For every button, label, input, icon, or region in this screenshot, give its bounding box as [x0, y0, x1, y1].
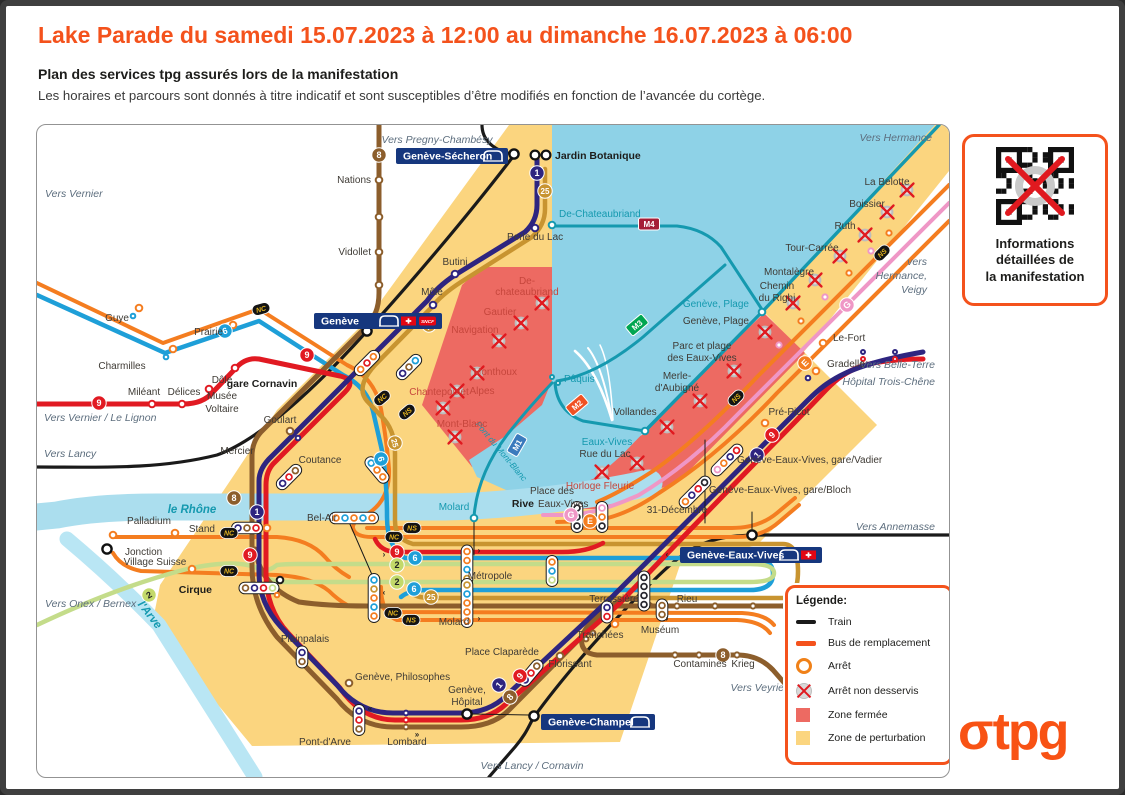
svg-text:›: ›: [666, 614, 669, 623]
svg-text:Vers Veyrier: Vers Veyrier: [731, 682, 788, 694]
svg-text:Nations: Nations: [337, 175, 371, 186]
svg-text:1: 1: [254, 507, 259, 517]
svg-text:9: 9: [247, 550, 252, 560]
svg-text:Genève, Philosophes: Genève, Philosophes: [355, 672, 450, 683]
svg-text:Navigation: Navigation: [451, 325, 498, 336]
svg-text:NC: NC: [224, 531, 235, 538]
svg-text:De-Chateaubriand: De-Chateaubriand: [559, 209, 641, 220]
svg-text:du Righi: du Righi: [759, 293, 796, 304]
svg-text:Terrassière: Terrassière: [589, 594, 639, 605]
tpg-sigma-icon: σ: [958, 703, 992, 761]
svg-text:Vers Hermance: Vers Hermance: [859, 132, 932, 144]
svg-text:d'Aubigné: d'Aubigné: [655, 383, 700, 394]
svg-text:chateaubriand: chateaubriand: [495, 287, 558, 298]
svg-text:Molard: Molard: [439, 617, 470, 628]
svg-text:Lombard: Lombard: [387, 737, 426, 748]
svg-text:Rive: Rive: [512, 498, 534, 510]
svg-text:›: ›: [478, 546, 481, 555]
svg-text:Genève-Eaux-Vives, gare/Vadier: Genève-Eaux-Vives, gare/Vadier: [737, 455, 883, 466]
page-frame: Lake Parade du samedi 15.07.2023 à 12:00…: [0, 0, 1125, 795]
svg-text:NC: NC: [388, 611, 399, 618]
svg-text:Musée: Musée: [207, 391, 237, 402]
svg-text:Chemin: Chemin: [760, 281, 794, 292]
svg-text:Vers Pregny-Chambésy: Vers Pregny-Chambésy: [381, 134, 493, 146]
legend-item-train: Train: [796, 616, 942, 628]
svg-text:1: 1: [534, 168, 539, 178]
svg-text:Eaux-Vives: Eaux-Vives: [538, 499, 588, 510]
svg-text:Voltaire: Voltaire: [205, 404, 239, 415]
svg-text:Charmilles: Charmilles: [98, 361, 145, 372]
svg-text:›: ›: [478, 614, 481, 623]
qr-info-box[interactable]: Informationsdétaillées dela manifestatio…: [962, 134, 1108, 306]
svg-text:Genève-Eaux-Vives, gare/Bloch: Genève-Eaux-Vives, gare/Bloch: [709, 485, 851, 496]
page-note: Les horaires et parcours sont donnés à t…: [38, 88, 765, 103]
svg-text:Vers Vernier / Le Lignon: Vers Vernier / Le Lignon: [44, 412, 157, 424]
svg-text:8: 8: [231, 493, 236, 503]
svg-text:De-: De-: [519, 276, 535, 287]
svg-text:Môle: Môle: [421, 287, 443, 298]
svg-text:Ruth: Ruth: [834, 221, 855, 232]
svg-text:Muséum: Muséum: [641, 625, 679, 636]
svg-text:Florissant: Florissant: [548, 659, 592, 670]
svg-text:Horloge Fleurie: Horloge Fleurie: [566, 481, 635, 492]
svg-text:‹: ‹: [666, 550, 669, 559]
page-title: Lake Parade du samedi 15.07.2023 à 12:00…: [38, 22, 852, 49]
cff-icon: [401, 317, 416, 326]
svg-text:Montalègre: Montalègre: [764, 267, 814, 278]
svg-text:2: 2: [394, 577, 399, 587]
svg-text:Guye: Guye: [105, 313, 129, 324]
svg-text:Genève-Sécheron: Genève-Sécheron: [403, 151, 492, 163]
svg-text:Vers Vernier: Vers Vernier: [45, 188, 103, 200]
svg-text:25: 25: [427, 593, 436, 602]
legend-item-bus: Bus de remplacement: [796, 637, 942, 649]
svg-text:Tour-Carrée: Tour-Carrée: [785, 243, 839, 254]
svg-text:Veigy: Veigy: [901, 284, 928, 296]
legend-item-x: Arrêt non desservis: [796, 683, 942, 699]
svg-text:Contamines: Contamines: [673, 659, 726, 670]
svg-text:Perle du Lac: Perle du Lac: [507, 232, 563, 243]
svg-text:Goulart: Goulart: [264, 415, 297, 426]
svg-text:Prairie: Prairie: [194, 327, 223, 338]
svg-text:Vollandes: Vollandes: [613, 407, 656, 418]
svg-text:NS: NS: [406, 618, 416, 625]
legend-item-zy: Zone de perturbation: [796, 731, 942, 745]
svg-text:Vers Belle-Terre: Vers Belle-Terre: [860, 359, 935, 371]
svg-text:‹: ‹: [383, 588, 386, 597]
svg-text:NS: NS: [407, 526, 417, 533]
svg-text:8: 8: [376, 150, 381, 160]
svg-text:Butini: Butini: [442, 257, 467, 268]
svg-text:Vers Lancy: Vers Lancy: [44, 448, 97, 460]
svg-text:Genève,: Genève,: [448, 685, 486, 696]
svg-text:Alpes: Alpes: [469, 386, 494, 397]
svg-text:Mont-Blanc: Mont-Blanc: [437, 419, 488, 430]
svg-text:Molard: Molard: [439, 502, 470, 513]
svg-text:Genève, Plage: Genève, Plage: [683, 316, 750, 327]
svg-text:Jardin Botanique: Jardin Botanique: [555, 150, 641, 162]
svg-text:Genève, Plage: Genève, Plage: [683, 299, 750, 310]
svg-text:Eaux-Vives: Eaux-Vives: [582, 437, 632, 448]
svg-text:Vers Annemasse: Vers Annemasse: [856, 521, 935, 533]
svg-text:Pré-Picot: Pré-Picot: [768, 407, 809, 418]
svg-text:«: «: [368, 704, 373, 713]
svg-text:G: G: [567, 510, 574, 520]
svg-text:gare Cornavin: gare Cornavin: [227, 378, 298, 390]
legend: Légende: TrainBus de remplacementArrêtAr…: [785, 585, 950, 765]
sncf-icon: SNCF: [419, 317, 436, 326]
svg-text:le Rhône: le Rhône: [168, 504, 217, 516]
legend-items: TrainBus de remplacementArrêtArrêt non d…: [796, 616, 942, 745]
svg-text:Gautier: Gautier: [484, 307, 517, 318]
svg-text:Stand: Stand: [189, 524, 215, 535]
svg-text:M4: M4: [643, 220, 655, 229]
legend-item-zr: Zone fermée: [796, 708, 942, 722]
svg-text:Genève-Champel: Genève-Champel: [548, 717, 634, 729]
svg-text:Merle-: Merle-: [663, 371, 691, 382]
svg-text:Bel-Air: Bel-Air: [307, 513, 338, 524]
svg-text:6: 6: [412, 553, 417, 563]
svg-text:9: 9: [304, 350, 309, 360]
svg-text:Hôpital: Hôpital: [451, 697, 482, 708]
svg-text:des Eaux-Vives: des Eaux-Vives: [667, 353, 736, 364]
svg-text:Genève-Eaux-Vives: Genève-Eaux-Vives: [687, 550, 784, 562]
svg-text:NC: NC: [389, 535, 400, 542]
svg-text:Plainpalais: Plainpalais: [281, 634, 329, 645]
svg-text:Métropole: Métropole: [468, 571, 513, 582]
svg-text:La Belotte: La Belotte: [864, 177, 909, 188]
svg-text:Place des: Place des: [530, 486, 574, 497]
svg-text:Gradelle: Gradelle: [827, 359, 865, 370]
svg-text:Village Suisse: Village Suisse: [124, 557, 187, 568]
svg-text:Vidollet: Vidollet: [338, 247, 371, 258]
svg-text:9: 9: [96, 398, 101, 408]
svg-text:›: ›: [383, 550, 386, 559]
svg-text:Krieg: Krieg: [731, 659, 754, 670]
svg-text:»: »: [415, 730, 420, 739]
svg-text:Rue du Lac: Rue du Lac: [579, 449, 630, 460]
svg-text:Place Claparède: Place Claparède: [465, 647, 539, 658]
svg-text:Délices: Délices: [168, 387, 201, 398]
svg-text:Coutance: Coutance: [299, 455, 342, 466]
svg-text:Chantepoulet: Chantepoulet: [409, 387, 469, 398]
tpg-logo: σtpg: [958, 706, 1118, 758]
svg-text:Cirque: Cirque: [179, 584, 212, 596]
svg-text:Genève: Genève: [321, 316, 359, 328]
svg-text:Rieu: Rieu: [677, 594, 698, 605]
svg-text:6: 6: [411, 584, 416, 594]
svg-text:NC: NC: [224, 569, 235, 576]
svg-text:Hermance,: Hermance,: [876, 270, 927, 282]
svg-text:Palladium: Palladium: [127, 516, 171, 527]
svg-text:Parc et plage: Parc et plage: [673, 341, 732, 352]
tpg-logo-text: tpg: [993, 703, 1068, 761]
qr-caption: Informationsdétaillées dela manifestatio…: [965, 236, 1105, 285]
transit-map: 81259NC69NCNCNCNS25256819NSNC9622625NCNS…: [36, 124, 950, 778]
cff-icon: [801, 551, 816, 560]
svg-text:Boissier: Boissier: [849, 199, 885, 210]
svg-text:E: E: [587, 516, 593, 526]
svg-text:Vers Onex / Bernex: Vers Onex / Bernex: [45, 598, 137, 610]
legend-item-stop: Arrêt: [796, 658, 942, 674]
svg-text:2: 2: [394, 560, 399, 570]
svg-text:Le-Fort: Le-Fort: [833, 333, 865, 344]
svg-text:Monthoux: Monthoux: [473, 367, 517, 378]
svg-text:9: 9: [394, 547, 399, 557]
svg-text:Miléant: Miléant: [128, 387, 160, 398]
svg-text:SNCF: SNCF: [421, 319, 435, 325]
qr-code-crossed-icon: [996, 147, 1074, 225]
svg-text:25: 25: [541, 187, 550, 196]
svg-text:Pâquis: Pâquis: [564, 374, 595, 385]
svg-text:31-Décembre: 31-Décembre: [647, 505, 708, 516]
legend-title: Légende:: [796, 595, 942, 607]
svg-text:vers: vers: [907, 256, 928, 268]
svg-text:Pont-d'Arve: Pont-d'Arve: [299, 737, 351, 748]
page-subtitle: Plan des services tpg assurés lors de la…: [38, 66, 398, 82]
svg-text:Tranchées: Tranchées: [577, 630, 624, 641]
svg-text:Hôpital Trois-Chêne: Hôpital Trois-Chêne: [842, 376, 935, 388]
svg-text:Vers Lancy / Cornavin: Vers Lancy / Cornavin: [481, 760, 584, 772]
svg-text:Mercier: Mercier: [220, 446, 254, 457]
